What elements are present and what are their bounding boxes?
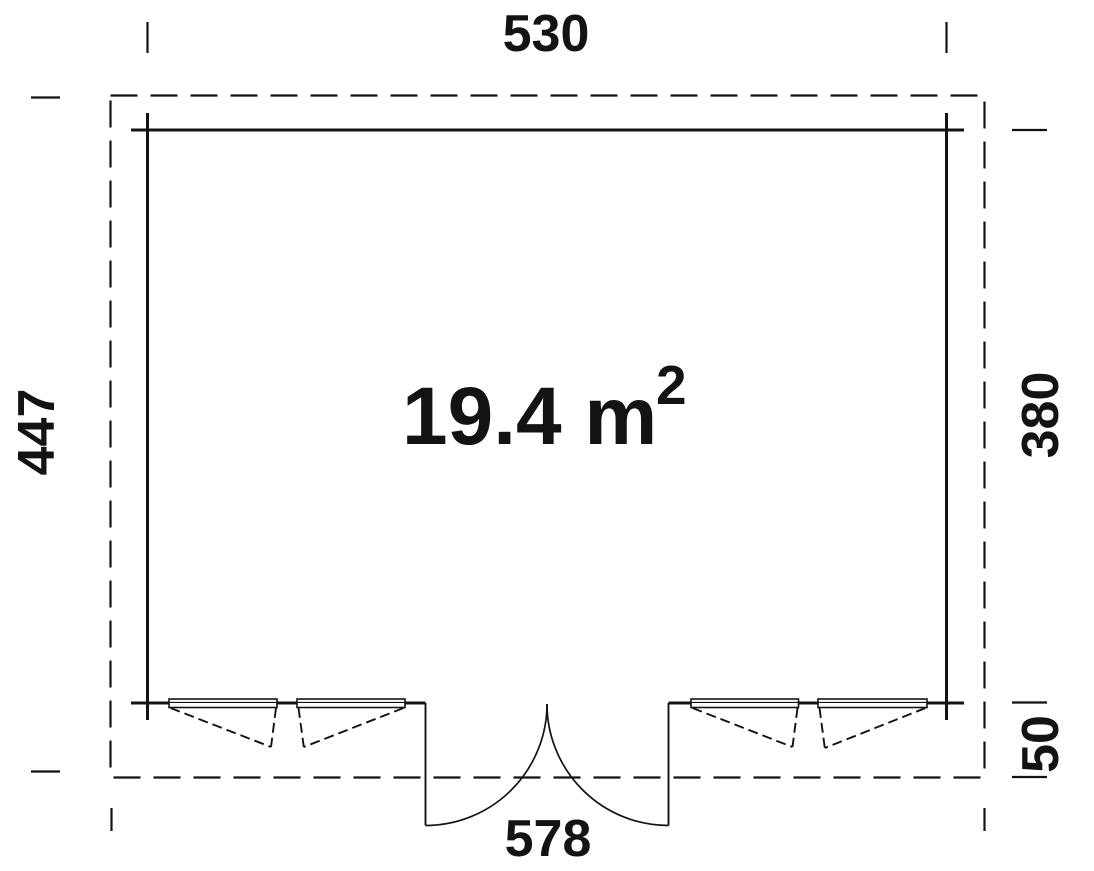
window-frame-icon bbox=[297, 699, 405, 708]
door-swing-arc-right bbox=[547, 704, 669, 826]
dimension-top-label: 530 bbox=[503, 5, 590, 63]
window-right-outer bbox=[818, 699, 927, 748]
area-label-base: 19.4 m bbox=[402, 371, 657, 462]
window-opening-dashes bbox=[299, 708, 404, 747]
door-swing-arc-left bbox=[426, 704, 548, 826]
floor-plan-canvas: 530 447 380 50 578 19.4 m 2 bbox=[0, 0, 1094, 871]
dimension-left: 447 bbox=[8, 98, 66, 772]
dimension-bottom-label: 578 bbox=[505, 810, 592, 868]
window-frame-icon bbox=[169, 699, 277, 708]
dimension-left-label: 447 bbox=[8, 389, 66, 476]
window-left-inner bbox=[297, 699, 405, 747]
floor-plan-page: 530 447 380 50 578 19.4 m 2 bbox=[0, 0, 1094, 871]
area-label-superscript: 2 bbox=[656, 354, 687, 416]
dimension-right-label: 380 bbox=[1012, 372, 1070, 459]
window-left-outer bbox=[169, 699, 277, 747]
area-label: 19.4 m 2 bbox=[402, 354, 687, 462]
double-door bbox=[426, 703, 669, 826]
dimension-top: 530 bbox=[148, 5, 947, 63]
dimension-bottom: 578 bbox=[112, 808, 985, 868]
window-frame-icon bbox=[691, 699, 799, 708]
window-opening-dashes bbox=[693, 708, 798, 747]
dimension-overhang: 50 bbox=[1012, 715, 1070, 777]
window-right-inner bbox=[691, 699, 799, 747]
window-opening-dashes bbox=[820, 708, 926, 748]
dimension-overhang-label: 50 bbox=[1012, 715, 1070, 773]
window-opening-dashes bbox=[171, 708, 277, 747]
window-frame-icon bbox=[818, 699, 927, 708]
dimension-right: 380 bbox=[1012, 130, 1070, 703]
